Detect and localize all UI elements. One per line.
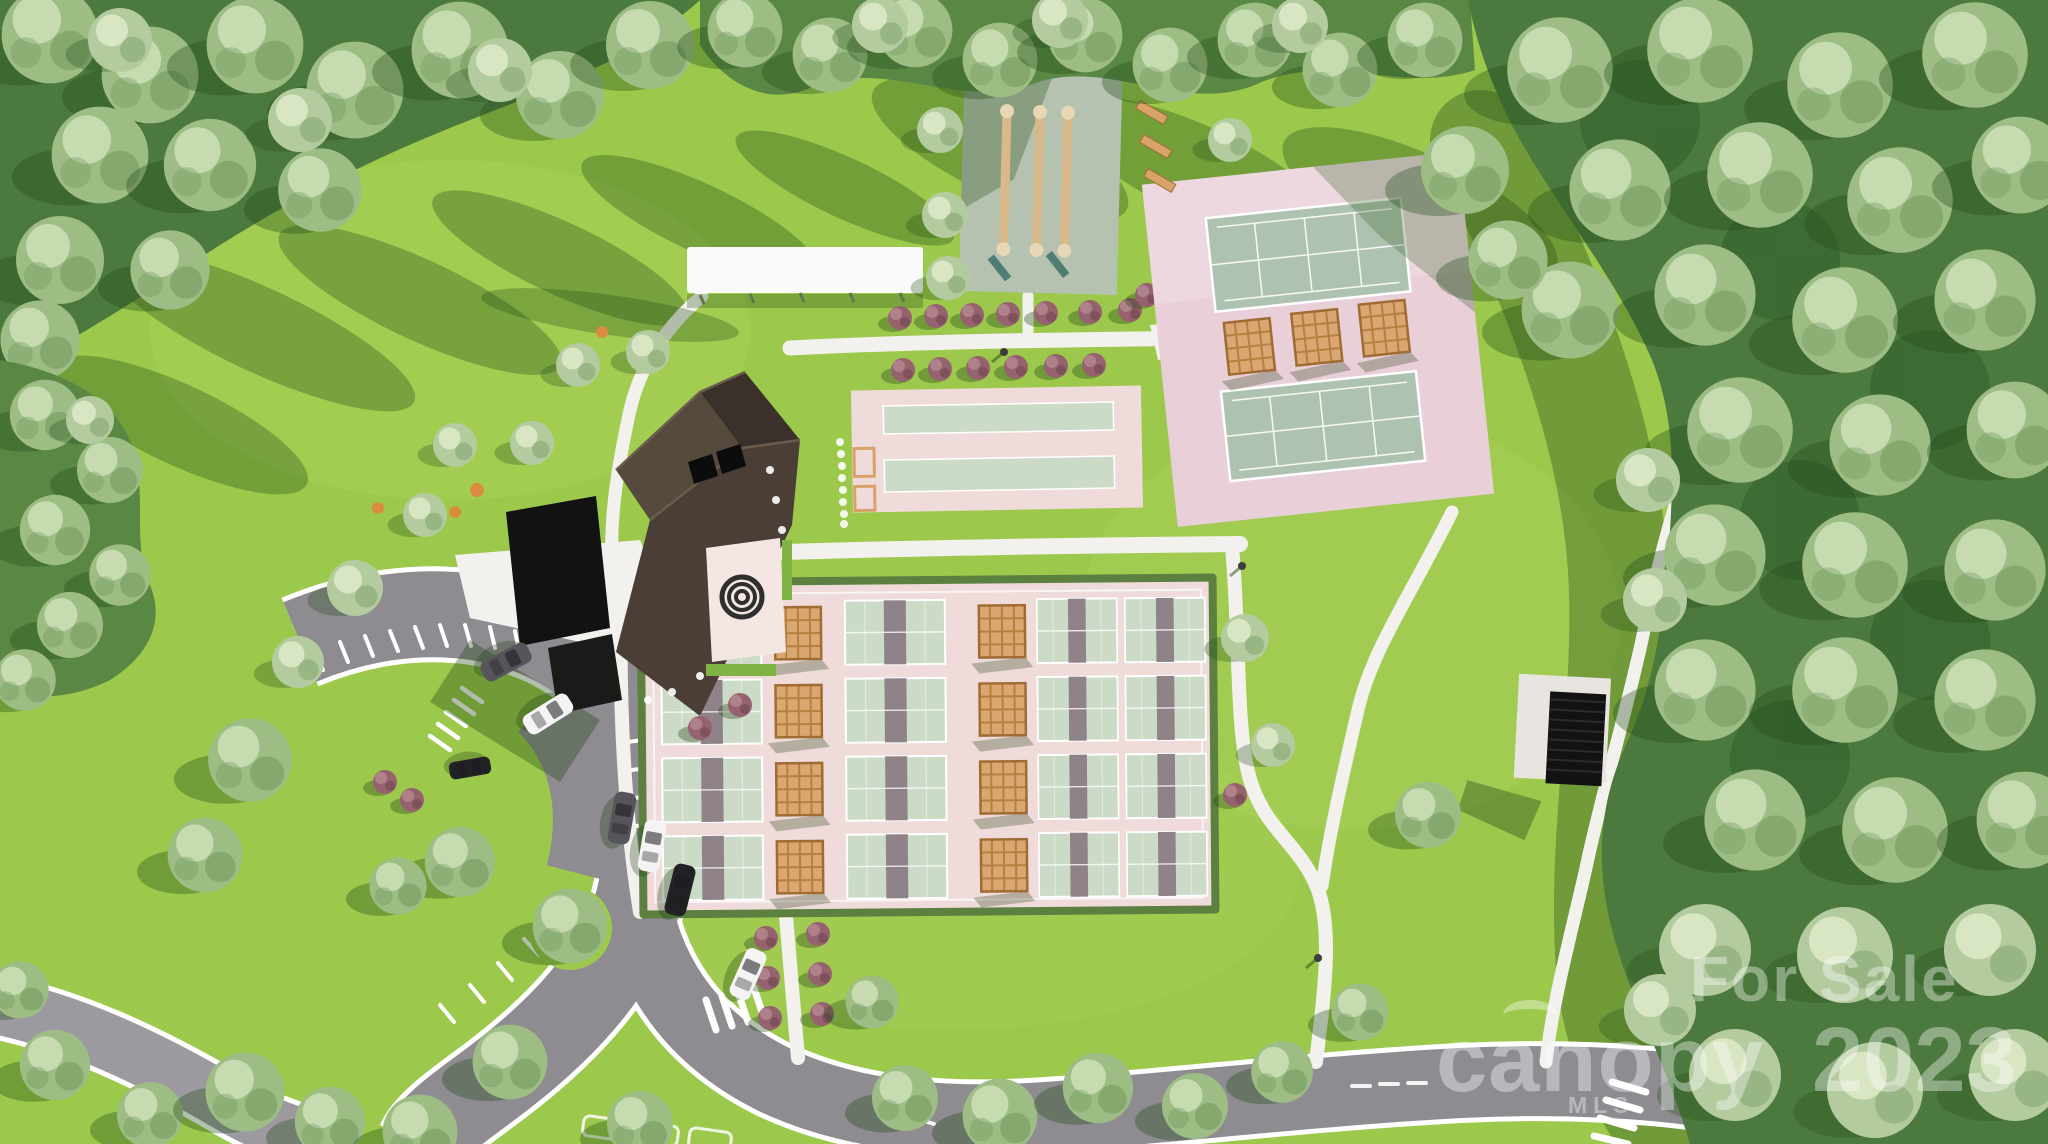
shuffleboard-lanes bbox=[996, 104, 1075, 258]
rose-patio-courtyard bbox=[706, 538, 786, 662]
site-plan-canvas bbox=[0, 0, 2048, 1144]
bocce-courts bbox=[851, 386, 1143, 513]
site-plan-rendering: For Sale canopy 2023 MLS bbox=[0, 0, 2048, 1144]
flat-roof-section bbox=[506, 496, 610, 646]
